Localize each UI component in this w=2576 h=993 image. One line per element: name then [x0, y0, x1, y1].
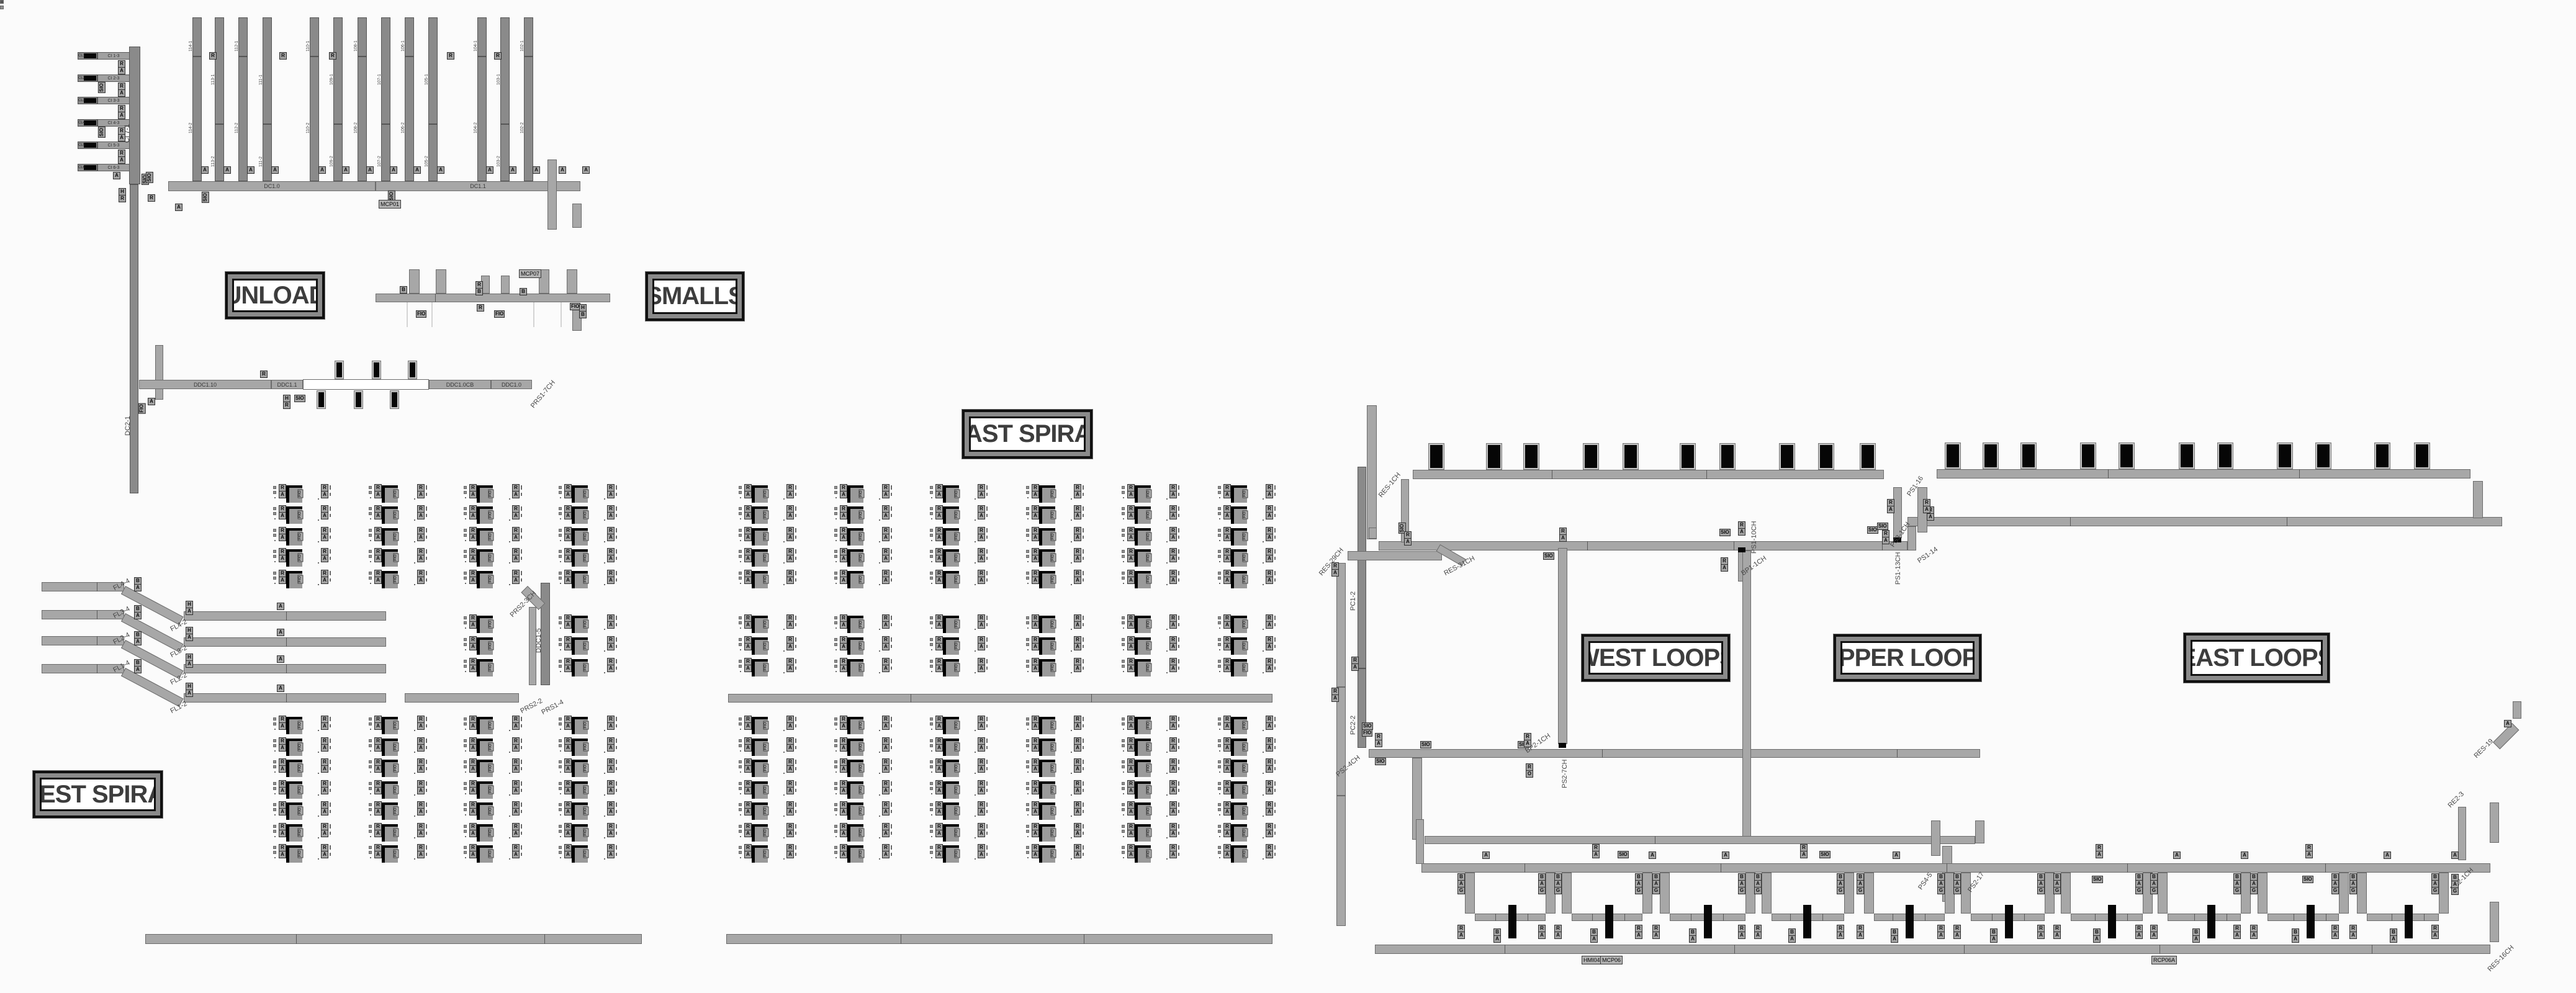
tick-mark: [1166, 858, 1168, 860]
mini-marker: [0, 62, 5, 74]
status-badge-fio: FIO: [763, 850, 769, 858]
status-badge-sio: SIO: [2302, 876, 2313, 883]
chute-dot: [465, 540, 466, 541]
belt-segment-divider: [1691, 914, 1691, 921]
status-badge-fio: FIO: [298, 721, 304, 730]
conveyor-bar: DDC1.0: [491, 380, 532, 389]
chute-dot: [559, 803, 562, 806]
status-badge-fio: FIO: [1243, 490, 1248, 498]
tick-mark: [986, 789, 988, 792]
status-badge-a: A: [1074, 851, 1081, 858]
tick-mark: [1083, 760, 1084, 764]
chute-dot: [835, 649, 837, 650]
tick-mark: [1274, 824, 1276, 829]
status-badge-a: A: [786, 621, 794, 629]
mini-marker: [0, 37, 5, 50]
status-badge-a: A: [512, 830, 520, 837]
status-badge-a: A: [1223, 643, 1231, 650]
status-badge-fio: FIO: [763, 511, 769, 519]
chute-module: RAFIO: [943, 845, 959, 863]
chute-dot: [930, 825, 933, 828]
tick-mark: [783, 519, 785, 521]
status-badge-a: A: [786, 491, 794, 498]
status-badge-a: A: [1032, 808, 1039, 816]
chute-dot: [465, 857, 466, 858]
dock-door: [372, 361, 381, 379]
belt-segment-divider: [1723, 914, 1724, 921]
conveyor-label: DDC1.0CB: [430, 380, 490, 389]
status-badge-a: A: [134, 584, 142, 591]
chute-tick-column: RA: [786, 659, 798, 675]
chute-dot: [1122, 846, 1125, 849]
conveyor-bar: [1369, 749, 1980, 758]
chute-tick-column: RA: [882, 659, 893, 675]
belt-segment-divider: [1947, 863, 1947, 873]
status-badge-a: A: [417, 512, 425, 519]
chute-module: RAFIO: [1039, 739, 1055, 756]
tick-mark: [1263, 498, 1264, 500]
status-badge-fio: FIO: [1243, 829, 1248, 837]
chute-dot: [274, 729, 276, 730]
tick-mark: [521, 739, 522, 743]
chute-dot: [369, 534, 372, 537]
status-badge-sio: SIO: [1819, 851, 1831, 858]
tick-mark: [521, 781, 522, 786]
chute-tick-column: RA: [1169, 506, 1181, 523]
chute-tick-column: RA: [607, 549, 618, 565]
equipment-tag: RES-1CH: [1377, 471, 1402, 499]
equipment-tag: PS1-14: [1916, 546, 1939, 565]
chute-dot: [1026, 486, 1029, 489]
chute-module: RAFIO: [752, 528, 768, 546]
chute-tick-column: RA: [1266, 571, 1277, 587]
tick-mark: [1083, 557, 1084, 560]
mini-marker: [0, 12, 5, 25]
tick-mark: [1178, 739, 1179, 743]
chute-dot: [464, 572, 467, 575]
status-badge-a: A: [1127, 851, 1135, 858]
tick-mark: [1083, 739, 1084, 743]
chute-tick-column: RA: [607, 485, 618, 501]
status-badge-a: A: [512, 512, 520, 519]
status-badge-a: A: [1788, 935, 1796, 943]
chute-tick-column: RA: [607, 571, 618, 587]
chute-dot: [834, 616, 837, 619]
tick-mark: [1083, 485, 1084, 490]
status-badge-g: G: [2053, 887, 2061, 894]
marker-dot: [0, 0, 4, 4]
chute-dot: [370, 836, 371, 837]
status-badge-a: A: [1074, 534, 1081, 541]
area-label-east-loops[interactable]: EAST LOOPS: [2184, 633, 2330, 683]
mini-marker: [0, 137, 5, 149]
belt-segment-divider: [1893, 914, 1893, 921]
belt-segment-divider: [1524, 863, 1525, 873]
status-badge-a: A: [1032, 643, 1039, 650]
tick-mark: [1166, 752, 1168, 753]
chute-dot: [464, 534, 467, 537]
status-badge-a: A: [1223, 851, 1231, 858]
tick-mark: [975, 816, 976, 817]
status-badge-a: A: [374, 744, 382, 752]
status-badge-fio: FIO: [298, 532, 304, 541]
tick-mark: [318, 498, 319, 500]
status-badge-a: A: [607, 534, 615, 541]
status-badge-a: A: [1169, 534, 1177, 541]
status-badge-a: A: [786, 643, 794, 650]
chute-tick-column: RA: [786, 637, 798, 654]
status-badge-a: A: [2384, 851, 2391, 859]
status-badge-fio: FIO: [763, 575, 769, 584]
chute-dot: [273, 529, 276, 532]
status-badge-b: B: [400, 286, 407, 294]
chute-dot: [464, 722, 467, 726]
status-badge-fio: FIO: [1243, 786, 1248, 794]
status-badge-a: A: [469, 722, 477, 730]
area-label-west-spiral[interactable]: WEST SPIRAL: [33, 771, 163, 818]
tick-mark: [616, 536, 617, 539]
status-badge-a: A: [469, 744, 477, 752]
status-badge-a: A: [279, 512, 286, 519]
tick-mark: [986, 845, 988, 850]
tick-mark: [604, 541, 605, 542]
chute-dot: [273, 744, 276, 747]
tick-mark: [509, 837, 510, 838]
chute-dot: [740, 729, 741, 730]
tick-mark: [1166, 562, 1168, 564]
chute-dot: [930, 665, 933, 668]
status-badge-a: A: [279, 765, 286, 773]
status-badge-r: R: [283, 402, 290, 409]
chute-dot: [1218, 803, 1221, 806]
conveyor-bar: [310, 17, 319, 56]
tick-mark: [521, 767, 522, 770]
equipment-tag: PRS2-2: [519, 697, 544, 715]
chute-dot: [1218, 825, 1221, 828]
belt-segment-divider: [2424, 914, 2425, 921]
chute-dot: [464, 577, 467, 580]
tick-mark: [891, 528, 892, 532]
chute-dot: [274, 497, 276, 498]
chute-tick-column: RA: [512, 760, 523, 776]
chute-dot: [1122, 638, 1125, 641]
conveyor-bar: [238, 56, 248, 181]
status-badge-fio: FIO: [1051, 554, 1056, 562]
tick-mark: [1274, 637, 1276, 642]
status-badge-a: A: [1074, 555, 1081, 562]
chute-dot: [930, 830, 933, 833]
status-badge-a: A: [1837, 932, 1844, 939]
hmi-button-hmi04[interactable]: HMI04: [1582, 956, 1602, 964]
conveyor-label: DDC1.10: [140, 380, 271, 389]
status-badge-fio: FIO: [955, 786, 960, 794]
hmi-button-mcp06[interactable]: MCP06: [1600, 956, 1623, 964]
chute-tick-column: RA: [786, 571, 798, 587]
dock-door: [1860, 443, 1876, 470]
tick-mark: [1083, 845, 1084, 850]
chute-dot: [1219, 540, 1220, 541]
hmi-button-rcp06a[interactable]: RCP06A: [2151, 956, 2177, 964]
chute-tick-column: RA: [786, 845, 798, 861]
chute-tick-column: RA: [1266, 616, 1277, 632]
dock-door-fill: [2120, 444, 2133, 467]
belt-segment-divider: [1964, 945, 1965, 954]
tick-mark: [795, 717, 796, 721]
status-badge-fio: FIO: [298, 490, 304, 498]
conveyor-bar: [533, 302, 534, 327]
chute-dot: [740, 518, 741, 519]
belt-segment-divider: [97, 636, 97, 645]
status-badge-g: G: [2349, 887, 2357, 894]
chute-dot: [1219, 583, 1220, 584]
chute-dot: [930, 486, 933, 489]
chute-tick-column: RA: [786, 824, 798, 840]
belt-segment-divider: [1602, 749, 1603, 758]
chute-dot: [930, 529, 933, 532]
status-badge-a: A: [1127, 491, 1135, 498]
tick-mark: [426, 832, 427, 835]
status-badge-a: A: [607, 722, 615, 730]
tick-mark: [1083, 724, 1084, 727]
chute-dot: [1218, 638, 1221, 641]
status-badge-sio: SIO: [2092, 876, 2103, 883]
tick-mark: [1178, 760, 1179, 764]
chute-module: RAFIO: [1135, 739, 1151, 756]
status-badge-fio: FIO: [1243, 620, 1248, 629]
chute-dot: [369, 739, 372, 742]
chute-dot: [559, 507, 562, 510]
tick-mark: [1178, 536, 1179, 539]
chute-dot: [1026, 534, 1029, 537]
status-badge-a: A: [417, 722, 425, 730]
conveyor-bar: [303, 379, 429, 390]
equipment-tag: 114-1: [189, 40, 193, 51]
chute-dot: [559, 665, 562, 668]
status-badge-a: A: [1482, 851, 1490, 859]
status-badge-a: A: [1169, 555, 1177, 562]
chute-tick-column: RA: [321, 571, 332, 587]
tick-mark: [1178, 810, 1179, 813]
tick-mark: [891, 781, 892, 786]
belt-segment-divider: [2127, 914, 2128, 921]
status-badge-a: A: [1800, 851, 1808, 858]
dock-door-fill: [1947, 444, 1959, 467]
status-badge-a: A: [2305, 851, 2313, 858]
tick-mark: [986, 810, 988, 813]
status-badge-a: A: [786, 577, 794, 584]
tick-mark: [891, 739, 892, 743]
tick-mark: [426, 578, 427, 582]
chute-dot: [1219, 793, 1220, 794]
area-label-west-loops[interactable]: WEST LOOPS: [1582, 634, 1730, 681]
status-badge-a: A: [417, 491, 425, 498]
status-badge-a: A: [786, 555, 794, 562]
chute-tick-column: RA: [882, 637, 893, 654]
chute-dot: [834, 486, 837, 489]
status-badge-a: A: [1074, 577, 1081, 584]
area-label-west-loops-text: WEST LOOPS: [1588, 641, 1723, 675]
tick-mark: [426, 549, 427, 554]
chute-dot: [931, 540, 932, 541]
equipment-tag: 102-1: [520, 40, 525, 52]
tick-mark: [879, 498, 880, 500]
dock-door: [317, 390, 326, 409]
chute-dot: [559, 486, 562, 489]
status-badge-a: A: [1032, 830, 1039, 837]
tick-mark: [426, 717, 427, 721]
tick-mark: [795, 549, 796, 554]
tick-mark: [1083, 623, 1084, 626]
belt-segment-divider: [2294, 914, 2294, 921]
chute-dot: [273, 572, 276, 575]
conveyor-bar: [2439, 873, 2449, 914]
tick-mark: [891, 659, 892, 663]
status-badge-a: A: [744, 665, 752, 672]
chute-module: RAFIO: [1231, 739, 1247, 756]
chute-module: RAFIO: [286, 739, 302, 756]
chute-dot: [370, 814, 371, 816]
chute-dot: [369, 486, 372, 489]
status-badge-a: A: [840, 808, 847, 816]
status-badge-fio: FIO: [955, 764, 960, 773]
chute-dot: [1122, 550, 1125, 553]
status-badge-fio: FIO: [583, 764, 589, 773]
status-badge-fio: FIO: [1243, 575, 1248, 584]
tick-mark: [891, 493, 892, 496]
chute-dot: [835, 561, 837, 562]
chute-dot: [465, 649, 466, 650]
dock-door: [1680, 443, 1696, 470]
status-badge-a: A: [417, 534, 425, 541]
chute-dot: [1122, 621, 1125, 624]
chute-dot: [464, 529, 467, 532]
chute-module: RAFIO: [572, 781, 588, 799]
chute-dot: [930, 491, 933, 494]
chute-dot: [1218, 782, 1221, 785]
tick-mark: [986, 724, 988, 727]
chute-tick-column: RA: [1169, 549, 1181, 565]
status-badge-g: G: [2233, 887, 2241, 894]
tick-mark: [879, 629, 880, 630]
status-badge-a: A: [744, 808, 752, 816]
dock-door-fill: [1721, 445, 1734, 468]
chute-dot: [739, 643, 742, 646]
chute-module: RAFIO: [1135, 760, 1151, 777]
chute-module: RAFIO: [572, 616, 588, 633]
chute-dot: [835, 750, 837, 752]
chute-dot: [560, 857, 561, 858]
chute-dot: [274, 836, 276, 837]
chute-dot: [464, 851, 467, 854]
area-label-east-spiral[interactable]: EAST SPIRAL: [962, 410, 1092, 459]
tick-mark: [318, 794, 319, 796]
chute-dot: [740, 561, 741, 562]
status-badge-sio: SIO: [1877, 523, 1888, 530]
tick-mark: [1071, 858, 1072, 860]
chute-dot: [931, 497, 932, 498]
area-label-upper-loops[interactable]: UPPER LOOPS: [1834, 634, 1981, 681]
conveyor-bar: [1907, 526, 1916, 550]
status-badge-fio: FIO: [1051, 807, 1056, 816]
status-badge-fio: FIO: [1146, 511, 1152, 519]
status-badge-a: A: [1990, 935, 1997, 943]
status-badge-fio: FIO: [394, 786, 399, 794]
chute-tick-column: RA: [321, 781, 332, 798]
chute-dot: [464, 765, 467, 768]
status-badge-fio: FIO: [1051, 620, 1056, 629]
chute-dot: [369, 787, 372, 790]
tick-mark: [891, 824, 892, 829]
conveyor-bar: [1844, 873, 1854, 914]
conveyor-bar: [129, 47, 140, 184]
chute-tick-column: RA: [607, 637, 618, 654]
status-badge-a: A: [118, 67, 125, 74]
conveyor-bar: [1358, 467, 1366, 668]
tick-mark: [1274, 536, 1276, 539]
tick-mark: [330, 557, 331, 560]
chute-tick-column: RA: [786, 528, 798, 544]
status-badge-a: A: [1032, 555, 1039, 562]
chute-module: RAFIO: [847, 528, 863, 546]
chute-dot: [464, 616, 467, 619]
status-badge-fio: FIO: [1146, 743, 1152, 752]
chute-dot: [369, 846, 372, 849]
status-badge-a: A: [1127, 555, 1135, 562]
loop-divert-post: [1508, 905, 1516, 938]
chute-dot: [1122, 491, 1125, 494]
chute-dot: [1027, 750, 1029, 752]
chute-dot: [740, 836, 741, 837]
chute-dot: [930, 621, 933, 624]
status-badge-a: A: [1032, 512, 1039, 519]
tick-mark: [1274, 853, 1276, 856]
status-badge-a: A: [1032, 722, 1039, 730]
chute-module: RAFIO: [572, 485, 588, 503]
chute-dot: [1219, 671, 1220, 672]
chute-dot: [740, 750, 741, 752]
hmi-button-mcp01[interactable]: MCP01: [379, 200, 401, 209]
status-badge-a: A: [882, 787, 889, 794]
chute-tick-column: RA: [512, 781, 523, 798]
tick-mark: [426, 514, 427, 517]
status-badge-a: A: [882, 665, 889, 672]
status-badge-fio: FIO: [859, 554, 865, 562]
status-badge-a: A: [469, 765, 477, 773]
status-badge-a: A: [1032, 491, 1039, 498]
belt-segment-divider: [2325, 863, 2326, 873]
status-badge-fio: FIO: [1051, 764, 1056, 773]
area-label-unload[interactable]: UNLOAD: [225, 272, 325, 319]
chute-module: RAFIO: [286, 506, 302, 524]
hmi-button-mcp07[interactable]: MCP07: [519, 269, 541, 278]
status-badge-a: A: [1331, 569, 1339, 577]
chute-module: RAFIO: [477, 637, 493, 655]
status-badge-a: A: [2250, 932, 2258, 939]
status-badge-a: A: [247, 166, 254, 174]
tick-mark: [1071, 794, 1072, 796]
belt-segment-divider: [544, 934, 545, 944]
status-badge-fio: FIO: [583, 721, 589, 730]
chute-dot: [1026, 621, 1029, 624]
area-label-upper-loops-text: UPPER LOOPS: [1840, 641, 1975, 675]
status-badge-a: A: [1127, 765, 1135, 773]
tick-mark: [616, 578, 617, 582]
chute-dot: [559, 846, 562, 849]
area-label-smalls[interactable]: SMALLS: [646, 272, 744, 321]
chute-module: RAFIO: [847, 845, 863, 863]
status-badge-fio: FIO: [1051, 743, 1056, 752]
chute-module: RAFIO: [1135, 571, 1151, 588]
